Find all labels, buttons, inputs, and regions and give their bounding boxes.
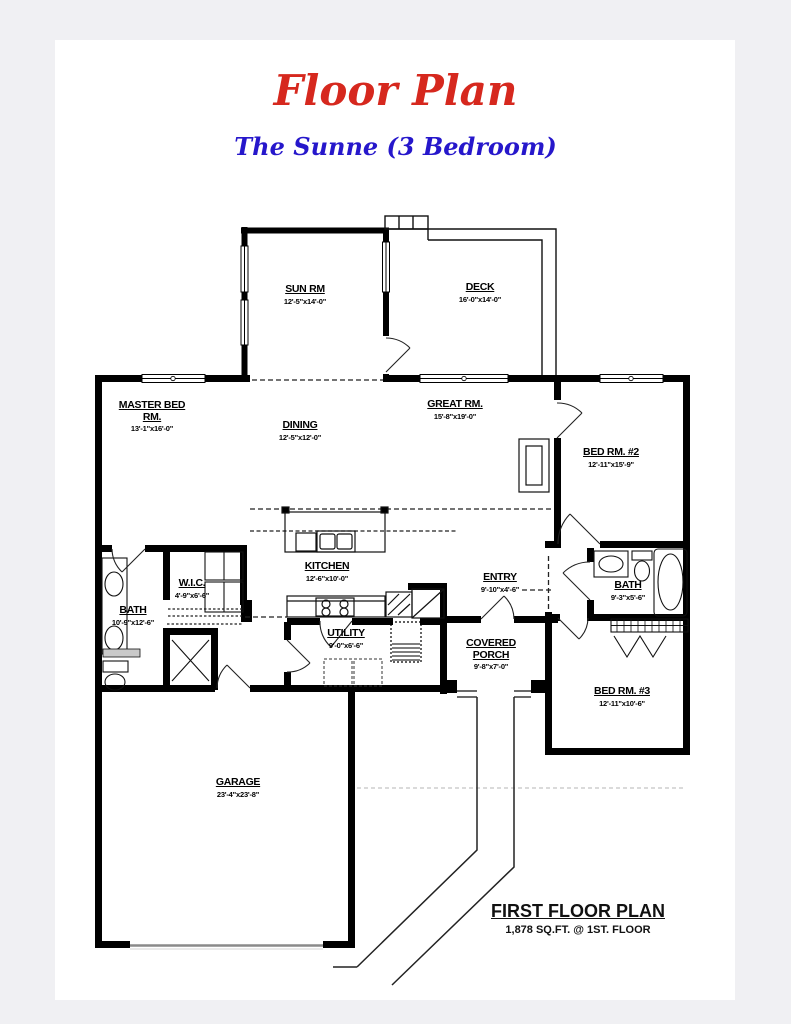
room-name: DECK [459, 282, 501, 294]
room-dims: 9'-10"x4'-6" [481, 585, 519, 594]
room-label-sun-rm: SUN RM 12'-5"x14'-0" [284, 284, 326, 306]
room-dims: 16'-0"x14'-0" [459, 295, 501, 304]
room-dims: 4'-9"x6'-6" [175, 591, 209, 600]
windows [142, 242, 663, 383]
room-label-master-bed-rm: MASTER BED RM. 13'-1"x16'-0" [110, 400, 194, 433]
room-name: BED RM. #2 [583, 447, 639, 459]
plan-sheet-area: 1,878 SQ.FT. @ 1ST. FLOOR [505, 924, 650, 936]
room-name: ENTRY [481, 572, 519, 584]
room-name: W.I.C. [175, 578, 209, 590]
room-label-deck: DECK 16'-0"x14'-0" [459, 282, 501, 304]
floor-plan-drawing [0, 0, 791, 1024]
room-label-dining: DINING 12'-5"x12'-0" [279, 420, 321, 442]
room-label-covered-porch: COVERED PORCH 9'-8"x7'-0" [454, 638, 528, 671]
room-name: MASTER BED RM. [110, 400, 194, 423]
room-label-bath-2: BATH 9'-3"x5'-6" [611, 580, 645, 602]
porch-and-walkway [333, 680, 545, 985]
room-dims: 12'-11"x10'-6" [594, 699, 650, 708]
room-name: GREAT RM. [427, 399, 482, 411]
garage-door [130, 946, 323, 950]
room-dims: 9'-0"x6'-6" [327, 641, 365, 650]
room-name: UTILITY [327, 628, 365, 640]
plan-sheet-title: FIRST FLOOR PLAN [491, 901, 665, 922]
room-name: SUN RM [284, 284, 326, 296]
room-dims: 13'-1"x16'-0" [110, 424, 194, 433]
room-label-bath-master: BATH 10'-9"x12'-6" [112, 605, 154, 627]
room-dims: 15'-8"x19'-0" [427, 412, 482, 421]
room-label-utility: UTILITY 9'-0"x6'-6" [327, 628, 365, 650]
fireplace [519, 439, 549, 492]
room-dims: 9'-3"x5'-6" [611, 593, 645, 602]
bed3-closet [611, 619, 688, 657]
room-name: BATH [611, 580, 645, 592]
room-name: BATH [112, 605, 154, 617]
room-name: KITCHEN [305, 561, 350, 573]
room-dims: 12'-6"x10'-0" [305, 574, 350, 583]
room-name: COVERED PORCH [454, 638, 528, 661]
room-name: GARAGE [216, 777, 260, 789]
walkway-lines [333, 697, 514, 985]
sun-room-door-gap [383, 336, 390, 374]
room-label-garage: GARAGE 23'-4"x23'-8" [216, 777, 260, 799]
room-label-wic: W.I.C. 4'-9"x6'-6" [175, 578, 209, 600]
room-label-entry: ENTRY 9'-10"x4'-6" [481, 572, 519, 594]
floor-plan-page: Floor Plan The Sunne (3 Bedroom) [0, 0, 791, 1024]
room-dims: 23'-4"x23'-8" [216, 790, 260, 799]
room-label-bed-rm-3: BED RM. #3 12'-11"x10'-6" [594, 686, 650, 708]
room-dims: 12'-5"x14'-0" [284, 297, 326, 306]
room-dims: 12'-5"x12'-0" [279, 433, 321, 442]
room-label-great-rm: GREAT RM. 15'-8"x19'-0" [427, 399, 482, 421]
room-dims: 12'-11"x15'-9" [583, 460, 639, 469]
room-label-kitchen: KITCHEN 12'-6"x10'-0" [305, 561, 350, 583]
room-name: BED RM. #3 [594, 686, 650, 698]
room-dims: 9'-8"x7'-0" [454, 662, 528, 671]
room-label-bed-rm-2: BED RM. #2 12'-11"x15'-9" [583, 447, 639, 469]
room-dims: 10'-9"x12'-6" [112, 618, 154, 627]
room-name: DINING [279, 420, 321, 432]
